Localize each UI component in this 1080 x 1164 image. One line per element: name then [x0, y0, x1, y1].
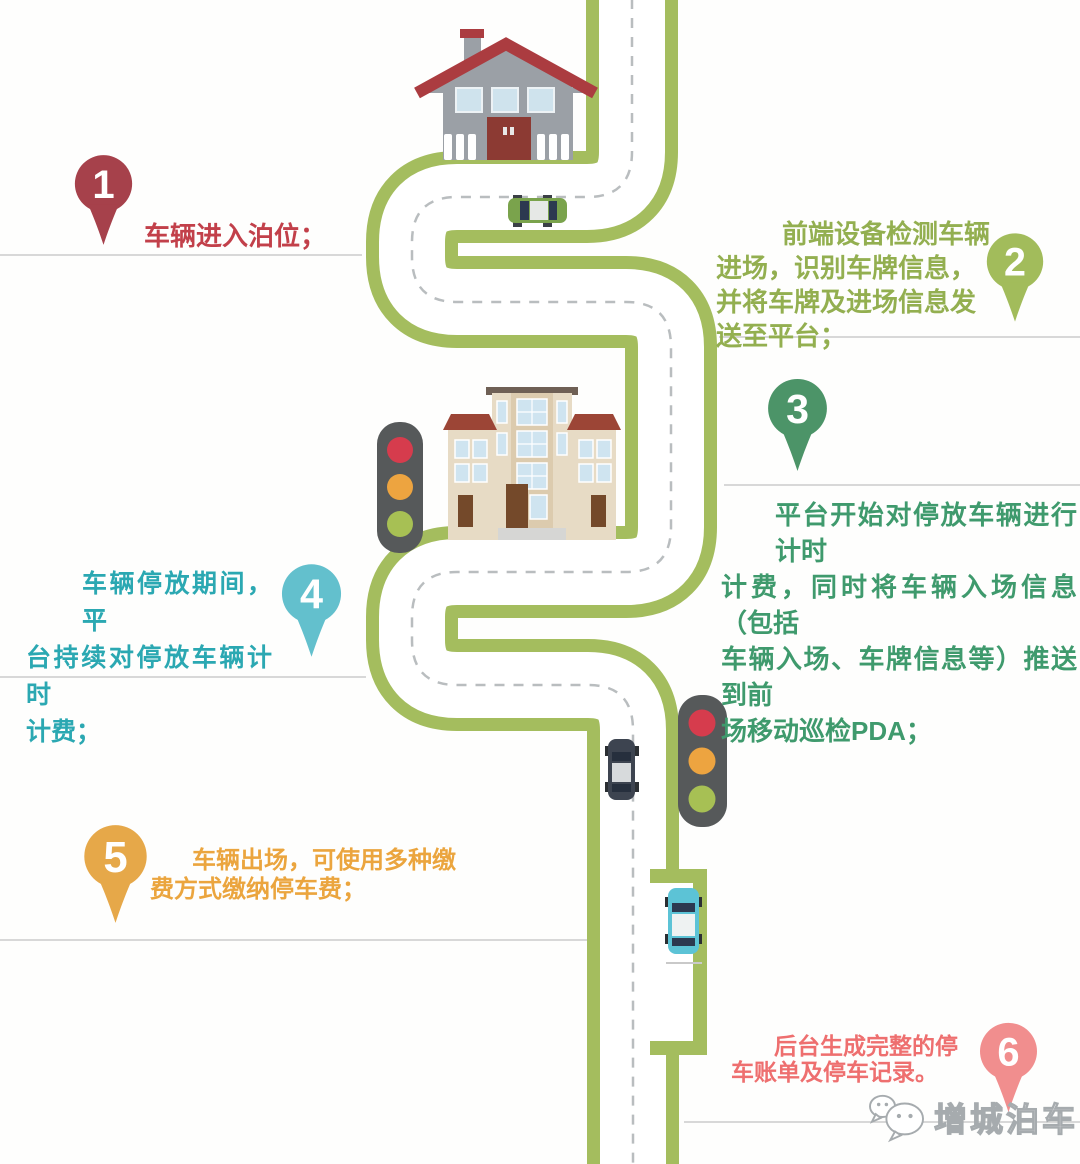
house-icon: [417, 29, 595, 160]
building-door-left: [458, 495, 473, 527]
pin-number: 2: [1004, 241, 1026, 285]
amber-light: [689, 748, 716, 775]
wechat-icon: [866, 1090, 928, 1144]
traffic-light-icon: [678, 695, 727, 827]
step-3-description: 平台开始对停放车辆进行计时 计费，同时将车辆入场信息（包括 车辆入场、车牌信息等…: [721, 497, 1077, 749]
green-car-top-view: [508, 195, 567, 227]
house-chimney-cap: [460, 29, 484, 38]
building-door-right: [591, 495, 606, 527]
step-1-description: 车辆进入泊位；: [144, 216, 326, 253]
house-roof: [417, 44, 595, 93]
watermark: 增城泊车: [866, 1090, 1078, 1144]
house-door: [487, 117, 531, 160]
step-2-description: 前端设备检测车辆 进场，识别车牌信息， 并将车牌及进场信息发 送至平台；: [716, 217, 996, 353]
map-pin-step-4: 4: [279, 561, 344, 660]
amber-light: [387, 474, 413, 500]
building-step: [498, 528, 566, 540]
pin-number: 4: [300, 572, 323, 618]
building-window-mullions: [517, 399, 547, 489]
building-wing-roof-right: [567, 414, 621, 430]
dark-car-top-view: [605, 739, 639, 800]
cyan-car-top-view: [665, 888, 702, 954]
step-4-description: 车辆停放期间，平 台持续对停放车辆计时 计费；: [26, 566, 272, 751]
green-light: [387, 511, 413, 537]
red-light: [689, 710, 716, 737]
map-pin-step-1: 1: [72, 152, 135, 248]
winding-road: [412, 0, 702, 1164]
map-pin-step-5: 5: [81, 822, 150, 926]
building-door-center: [506, 484, 528, 530]
watermark-text: 增城泊车: [934, 1093, 1078, 1141]
traffic-light-icon: [377, 422, 423, 553]
office-building-icon: [443, 387, 621, 540]
green-light: [689, 786, 716, 813]
step-5-description: 车辆出场，可使用多种缴 费方式缴纳停车费；: [150, 846, 456, 904]
parking-process-infographic: 1 2 3 4 5 6: [0, 0, 1080, 1164]
map-pin-step-3: 3: [765, 376, 830, 474]
step-6-description: 后台生成完整的停 车账单及停车记录。: [731, 1033, 965, 1085]
red-light: [387, 437, 413, 463]
house-door-handle: [503, 127, 507, 135]
pin-number: 3: [786, 386, 809, 432]
pin-number: 1: [92, 163, 114, 207]
building-wing-roof-left: [443, 414, 497, 430]
pin-number: 6: [997, 1031, 1019, 1075]
pin-number: 5: [103, 833, 127, 882]
house-windows: [456, 88, 554, 112]
